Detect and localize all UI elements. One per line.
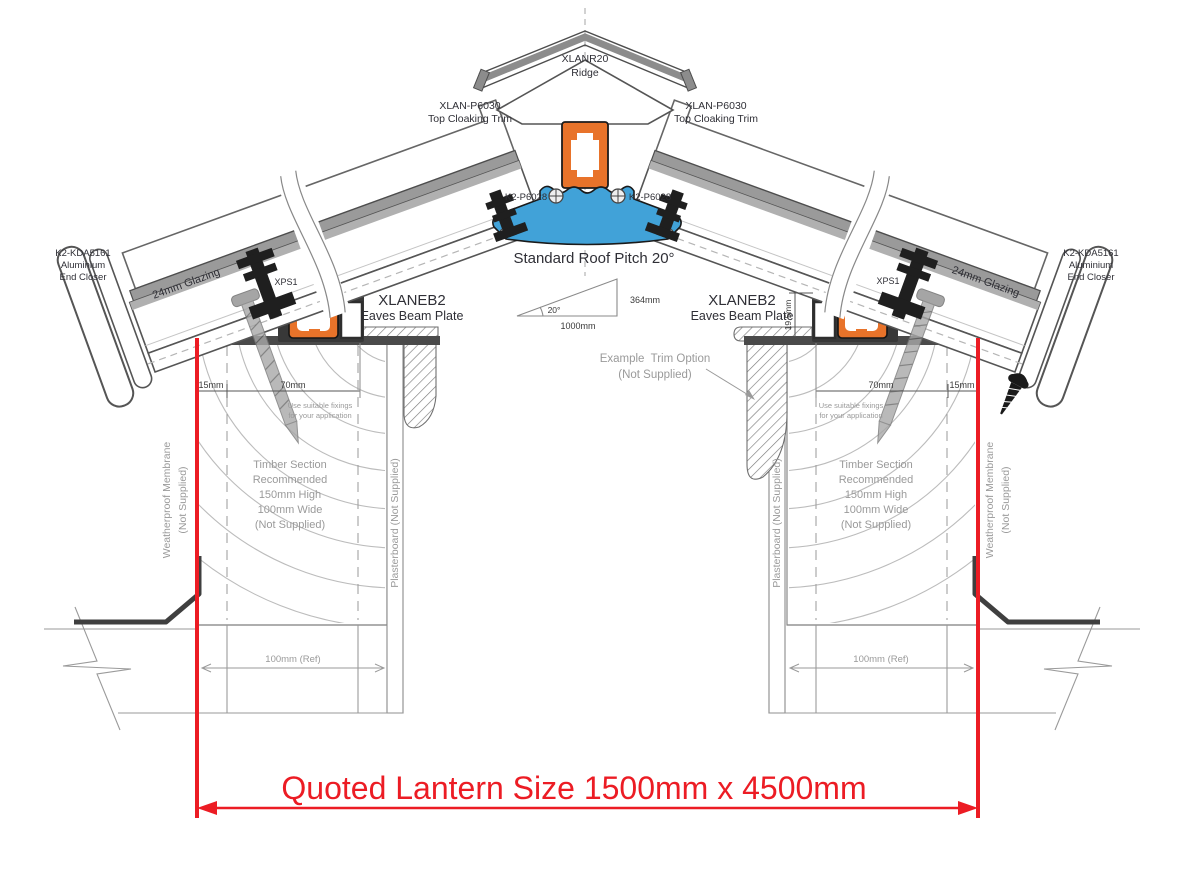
ref-right-label: 100mm (Ref): [853, 654, 908, 665]
timber-left-line5: (Not Supplied): [255, 519, 325, 531]
timber-right-line2: Recommended: [839, 474, 914, 486]
trim-option-line2: (Not Supplied): [618, 369, 692, 381]
fixing-note-right-line1: Use suitable fixings: [819, 401, 884, 410]
dim-right-15-label: 15mm: [949, 380, 974, 390]
ridge-name-label: Ridge: [571, 67, 599, 79]
pitch-triangle: [517, 279, 617, 316]
plasterboard-right-label: Plasterboard (Not Supplied): [771, 458, 783, 588]
timber-left-line2: Recommended: [253, 474, 328, 486]
membrane-left-line1: Weatherproof Membrane: [161, 442, 173, 559]
ridge-thermal-break: [562, 122, 608, 188]
fixing-note-left-line1: Use suitable fixings: [288, 401, 353, 410]
end-closer-right-part-label: K2-KDA5161: [1063, 248, 1118, 259]
ridge-fixing-right-label: K2-P6028: [629, 192, 671, 203]
cloaking-right-name-label: Top Cloaking Trim: [674, 113, 758, 125]
ridge-fixing-left-label: K2-P6028: [505, 192, 547, 203]
fixing-note-right-line2: for your application: [819, 411, 882, 420]
eaves-left-name-label: Eaves Beam Plate: [361, 309, 464, 323]
plasterboard-left-label: Plasterboard (Not Supplied): [389, 458, 401, 588]
break-symbol-right: [1044, 607, 1112, 730]
pitch-rise-label: 364mm: [630, 295, 660, 305]
membrane-right: [975, 556, 1100, 622]
ref-left-label: 100mm (Ref): [265, 654, 320, 665]
fixing-note-left-line2: for your application: [288, 411, 351, 420]
end-closer-right-line1: Aluminium: [1069, 260, 1113, 271]
membrane-right-line2: (Not Supplied): [1000, 466, 1012, 533]
cloaking-left-part-label: XLAN-P6030: [439, 100, 500, 112]
timber-right-line1: Timber Section: [839, 459, 913, 471]
quoted-size-label: Quoted Lantern Size 1500mm x 4500mm: [281, 770, 866, 806]
end-closer-left-line2: End Closer: [60, 272, 107, 283]
ridge-bolt-left: [549, 189, 563, 203]
timber-left-line4: 100mm Wide: [258, 504, 323, 516]
ridge-bolt-right: [611, 189, 625, 203]
cloaking-right-part-label: XLAN-P6030: [685, 100, 746, 112]
timber-right-line3: 150mm High: [845, 489, 907, 501]
roof-lantern-section-diagram: XLANR20 Ridge XLAN-P6030 Top Cloaking Tr…: [0, 0, 1184, 872]
membrane-left-line2: (Not Supplied): [177, 466, 189, 533]
cloaking-left-name-label: Top Cloaking Trim: [428, 113, 512, 125]
dim-left-15-label: 15mm: [198, 380, 223, 390]
pitch-angle-label: 20°: [548, 305, 561, 315]
end-closer-right-line2: End Closer: [1068, 272, 1115, 283]
timber-right-line4: 100mm Wide: [844, 504, 909, 516]
dim-beam-height-label: 19.5mm: [783, 300, 793, 331]
dim-right-70-label: 70mm: [868, 380, 893, 390]
membrane-left: [74, 556, 199, 622]
eaves-right-name-label: Eaves Beam Plate: [691, 309, 794, 323]
break-symbol-left: [63, 607, 131, 730]
timber-left-line3: 150mm High: [259, 489, 321, 501]
timber-right-line5: (Not Supplied): [841, 519, 911, 531]
trim-option-line1: Example Trim Option: [600, 353, 711, 365]
pitch-title: Standard Roof Pitch 20°: [513, 250, 674, 267]
xps1-left-label: XPS1: [274, 277, 297, 287]
dim-left-70-label: 70mm: [280, 380, 305, 390]
eaves-right-part-label: XLANEB2: [708, 292, 776, 309]
timber-left-line1: Timber Section: [253, 459, 327, 471]
ridge-part-label: XLANR20: [562, 53, 609, 65]
membrane-right-line1: Weatherproof Membrane: [984, 442, 996, 559]
diagram-canvas: XLANR20 Ridge XLAN-P6030 Top Cloaking Tr…: [0, 0, 1184, 872]
end-closer-left-line1: Aluminium: [61, 260, 105, 271]
pitch-run-label: 1000mm: [560, 321, 595, 331]
xps1-right-label: XPS1: [876, 276, 899, 286]
end-closer-left-part-label: K2-KDA5161: [55, 248, 110, 259]
eaves-left-part-label: XLANEB2: [378, 292, 446, 309]
